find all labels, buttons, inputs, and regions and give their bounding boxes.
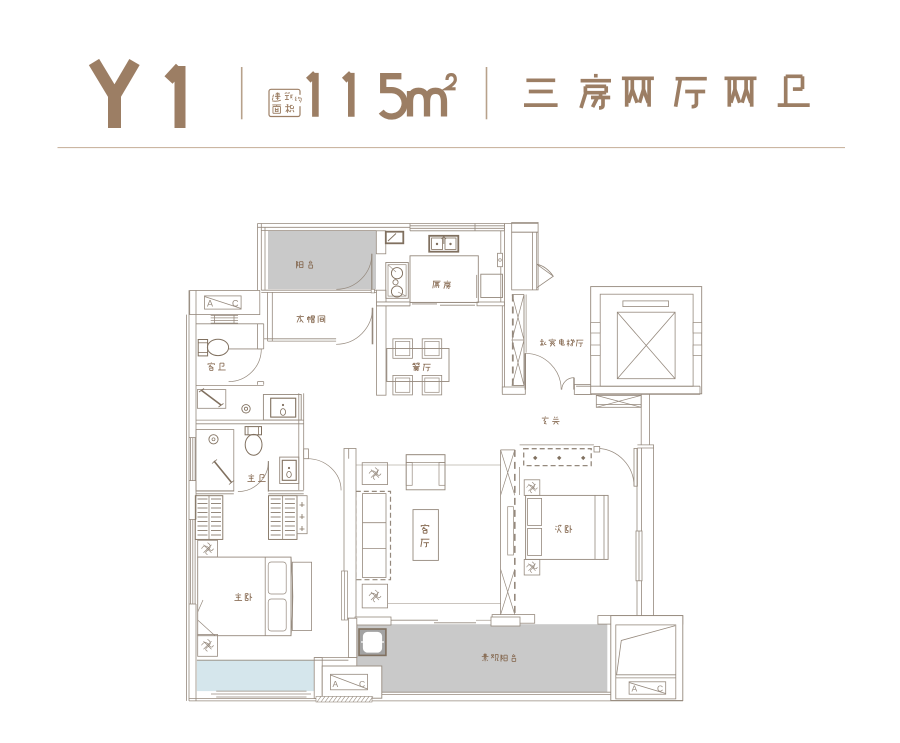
svg-text:C: C <box>359 679 365 689</box>
svg-text:A: A <box>333 679 339 689</box>
svg-text:A: A <box>632 684 638 694</box>
svg-text:C: C <box>232 299 239 309</box>
svg-text:A: A <box>207 299 213 309</box>
svg-text:C: C <box>657 684 663 694</box>
